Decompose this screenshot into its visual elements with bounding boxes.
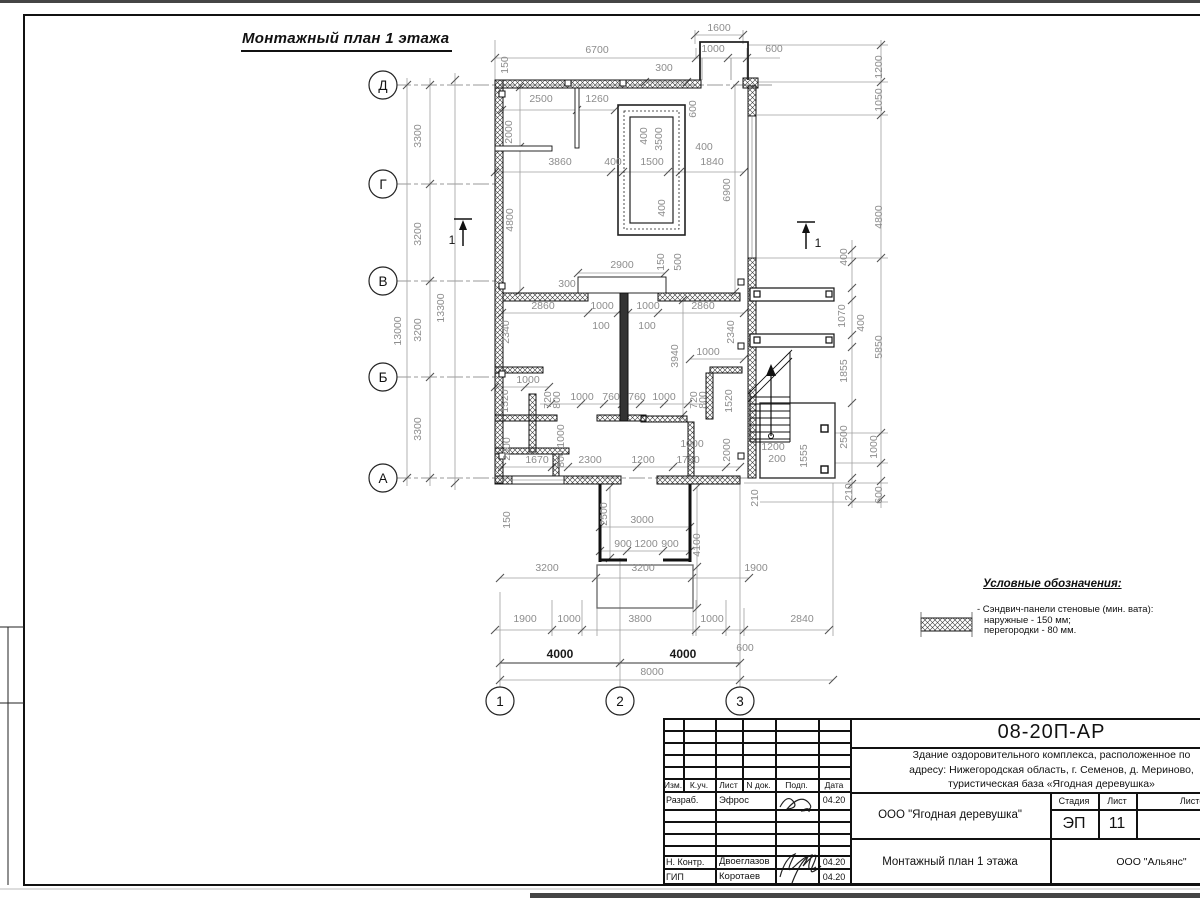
dimension-label: 900 — [661, 538, 679, 550]
dimension-label: 2860 — [531, 300, 555, 312]
section-arrowhead-left — [459, 220, 467, 230]
legend-line-3: перегородки - 80 мм. — [977, 626, 1153, 637]
dimension-label: 900 — [614, 538, 632, 550]
axis-label: Г — [379, 177, 387, 192]
dimension-label: 13300 — [435, 293, 447, 322]
dimension-label: 1600 — [707, 22, 731, 34]
col-list: Лист — [715, 778, 742, 791]
dimension-label: 1200 — [761, 441, 785, 453]
sheet-label: Лист — [1098, 792, 1136, 809]
dimension-label: 3200 — [631, 562, 655, 574]
dimension-label: 1000 — [700, 613, 724, 625]
dimension-label: 1070 — [836, 304, 848, 328]
bottom-bar — [530, 893, 1200, 898]
col-izm: Изм. — [663, 778, 683, 791]
drawing-sheet: ДГВБА12311160067001000600300250012601502… — [0, 0, 1200, 900]
stair-direction-arrowhead — [766, 364, 776, 376]
dimension-label: 2340 — [500, 320, 512, 344]
dimension-label: 760 — [602, 391, 620, 403]
dimension-label: 4000 — [547, 647, 574, 661]
stage-value: ЭП — [1050, 809, 1098, 838]
author-org: ООО "Альянс" — [1050, 838, 1200, 885]
dimension-label: 100 — [592, 320, 610, 332]
dimension-label: 400 — [838, 248, 850, 266]
gip-role: ГИП — [663, 868, 715, 885]
dimension-label: 2500 — [598, 502, 610, 526]
dimension-label: 2900 — [610, 259, 634, 271]
dimension-label: 8000 — [640, 666, 664, 678]
dimension-label: 3940 — [669, 344, 681, 368]
stage-label: Стадия — [1050, 792, 1098, 809]
plan-labels: ДГВБА12311160067001000600300250012601502… — [378, 22, 885, 709]
dimension-label: 2500 — [838, 425, 850, 449]
right-beams — [750, 288, 834, 347]
dimension-label: 3300 — [412, 417, 424, 441]
col-podp: Подп. — [775, 778, 818, 791]
axis-label: Б — [379, 370, 388, 385]
dimension-label: 6700 — [585, 44, 609, 56]
dimension-label: 2300 — [578, 454, 602, 466]
dimension-label: 3000 — [630, 514, 654, 526]
dimension-label: 1000 — [557, 613, 581, 625]
ncontrol-date: 04.20 — [818, 855, 850, 868]
dimension-label: 400 — [638, 127, 650, 145]
dimension-label: 1670 — [525, 454, 549, 466]
dimension-label: 1520 — [723, 389, 735, 413]
dimension-label: 1000 — [696, 346, 720, 358]
chimney-inner-lines — [702, 58, 731, 80]
dimension-label: 6900 — [721, 178, 733, 202]
dimension-label: 2000 — [501, 437, 513, 461]
axis-label: А — [378, 471, 387, 486]
dimension-label: 3500 — [653, 127, 665, 151]
dimension-label: 4800 — [873, 205, 885, 229]
dimension-label: 1000 — [555, 424, 567, 448]
dimension-label: 1000 — [516, 374, 540, 386]
dimension-label: 400 — [656, 199, 668, 217]
dimension-label: 2340 — [725, 320, 737, 344]
dimension-label: 13000 — [392, 316, 404, 345]
dimension-label: 2500 — [529, 93, 553, 105]
sheet-title: Монтажный план 1 этажа — [850, 838, 1050, 885]
plan-heading: Монтажный план 1 этажа — [241, 30, 452, 52]
dimension-label: 5850 — [873, 335, 885, 359]
dimension-label: 800 — [551, 391, 563, 409]
axis-label: 3 — [736, 694, 744, 709]
dimension-label: 300 — [558, 278, 576, 290]
section-label: 1 — [815, 236, 822, 250]
dimension-label: 1750 — [676, 454, 700, 466]
dimension-label: 1900 — [744, 562, 768, 574]
developer-role: Разраб. — [663, 791, 715, 809]
dimension-label: 100 — [638, 320, 656, 332]
dimension-label: 500 — [672, 253, 684, 271]
dimension-label: 600 — [687, 100, 699, 118]
dimension-label: 1000 — [570, 391, 594, 403]
dimension-label: 1200 — [873, 55, 885, 79]
sheets-label: Листов — [1136, 792, 1200, 809]
pool — [618, 105, 685, 235]
top-bar — [0, 0, 1200, 3]
sheet-value: 11 — [1098, 809, 1136, 838]
dimension-label: 1000 — [680, 438, 704, 450]
dimension-label: 3800 — [628, 613, 652, 625]
dimension-label: 3860 — [548, 156, 572, 168]
central-partition-wall — [620, 293, 628, 421]
dimension-label: 600 — [736, 642, 754, 654]
dimension-label: 800 — [555, 450, 567, 468]
dimension-label: 1840 — [700, 156, 724, 168]
ncontrol-role: Н. Контр. — [663, 855, 715, 868]
dimension-label: 1200 — [631, 454, 655, 466]
section-arrowhead-right — [802, 223, 810, 233]
dimension-label: 1200 — [634, 538, 658, 550]
project-description: Здание оздоровительного комплекса, распо… — [850, 748, 1200, 792]
dimension-label: 1555 — [798, 444, 810, 468]
dimension-label: 1000 — [636, 300, 660, 312]
col-ndok: N док. — [742, 778, 775, 791]
col-data: Дата — [818, 778, 850, 791]
dimension-label: 3300 — [412, 124, 424, 148]
col-kuch: К.уч. — [683, 778, 715, 791]
dimension-label: 1050 — [873, 88, 885, 112]
legend-title: Условные обозначения: — [983, 578, 1122, 590]
dimension-label: 1000 — [590, 300, 614, 312]
dimension-label: 150 — [655, 253, 667, 271]
dimension-label: 800 — [697, 391, 709, 409]
dimension-label: 1520 — [499, 389, 511, 413]
gip-name: Коротаев — [715, 868, 775, 885]
dimension-label: 4100 — [691, 533, 703, 557]
dimension-label: 300 — [655, 62, 673, 74]
dimension-label: 760 — [628, 391, 646, 403]
dimension-label: 600 — [765, 43, 783, 55]
developer-name: Эфрос — [715, 791, 775, 809]
dimension-label: 210 — [749, 489, 761, 507]
dimension-label: 1000 — [652, 391, 676, 403]
dimension-label: 600 — [873, 486, 885, 504]
axis-label: Д — [378, 78, 387, 93]
dimension-label: 2840 — [790, 613, 814, 625]
axis-label: 2 — [616, 694, 624, 709]
dimension-label: 400 — [695, 141, 713, 153]
dimension-label: 3200 — [412, 318, 424, 342]
dimension-label: 1855 — [838, 359, 850, 383]
dimension-label: 210 — [843, 483, 855, 501]
dimension-label: 4800 — [504, 208, 516, 232]
gip-date: 04.20 — [818, 868, 850, 885]
dimension-label: 150 — [501, 511, 513, 529]
dimension-label: 2000 — [503, 120, 515, 144]
dimension-label: 3200 — [412, 222, 424, 246]
legend-item: - Сэндвич-панели стеновые (мин. вата): н… — [977, 605, 1153, 637]
doc-number: 08-20П-АР — [850, 718, 1200, 747]
dimension-label: 2860 — [691, 300, 715, 312]
dimension-label: 200 — [768, 453, 786, 465]
section-label: 1 — [449, 233, 456, 247]
dimension-label: 4000 — [670, 647, 697, 661]
legend-line-1: - Сэндвич-панели стеновые (мин. вата): — [977, 605, 1153, 616]
client-org: ООО "Ягодная деревушка" — [850, 792, 1050, 838]
dimension-label: 1500 — [640, 156, 664, 168]
axis-label: 1 — [496, 694, 504, 709]
dimension-label: 1000 — [701, 43, 725, 55]
dimension-label: 1000 — [868, 435, 880, 459]
dimension-label: 400 — [855, 314, 867, 332]
dimension-label: 2000 — [721, 438, 733, 462]
ncontrol-name: Двоеглазов — [715, 855, 775, 868]
dimension-label: 400 — [604, 156, 622, 168]
dimension-label: 150 — [499, 56, 511, 74]
axis-label: В — [378, 274, 387, 289]
developer-date: 04.20 — [818, 791, 850, 809]
legend-panel-symbol — [921, 612, 972, 637]
dimension-label: 3200 — [535, 562, 559, 574]
dimension-label: 1260 — [585, 93, 609, 105]
dimension-label: 1900 — [513, 613, 537, 625]
